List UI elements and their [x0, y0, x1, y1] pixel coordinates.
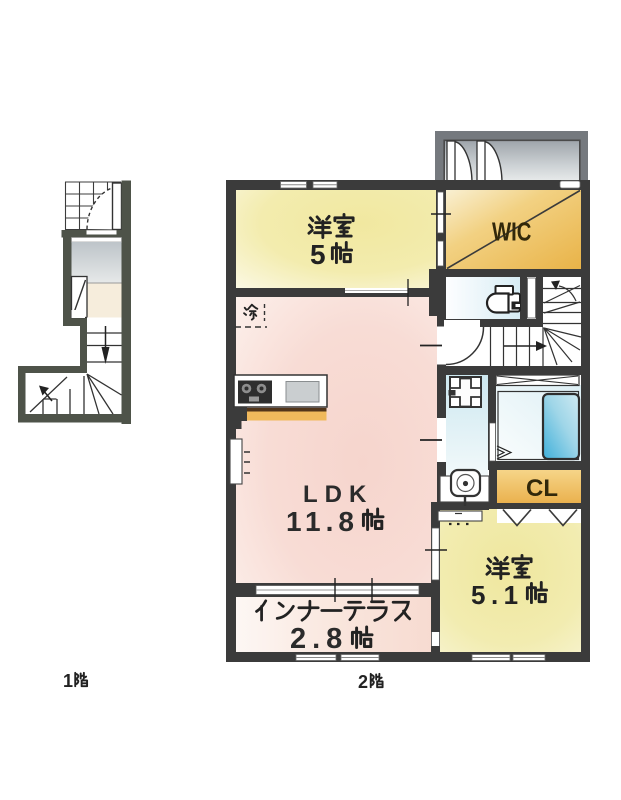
svg-text:5: 5	[310, 239, 326, 270]
svg-text:11.8: 11.8	[286, 506, 359, 537]
svg-text:CL: CL	[526, 475, 558, 502]
svg-text:LDK: LDK	[303, 481, 373, 508]
svg-text:2.8: 2.8	[290, 623, 348, 655]
svg-text:WIC: WIC	[492, 217, 532, 246]
svg-text:2: 2	[358, 672, 368, 692]
svg-text:1: 1	[63, 671, 73, 691]
svg-text:5.1: 5.1	[471, 580, 524, 610]
